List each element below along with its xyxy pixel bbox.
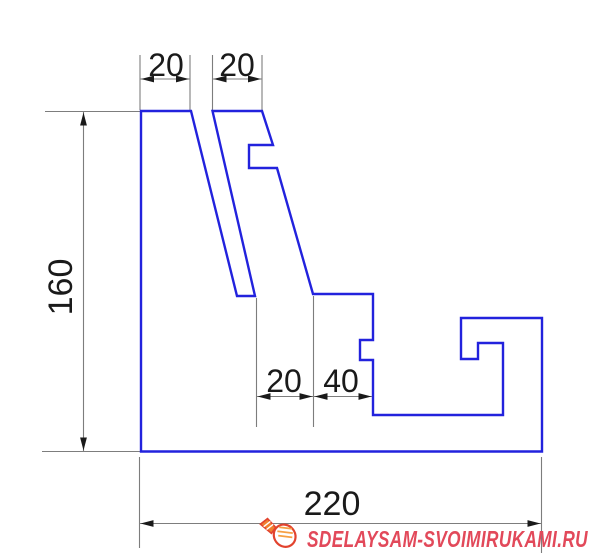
dimension-label: 160 — [42, 259, 80, 316]
dimension-label: 220 — [304, 485, 361, 523]
dimension-label: 20 — [148, 47, 184, 83]
technical-drawing-page: 20 20 160 20 40 220 — [0, 0, 600, 555]
dimension-label: 40 — [323, 363, 359, 399]
arrowhead — [80, 113, 87, 126]
dimension-top-right: 20 — [213, 47, 263, 110]
watermark-text: SDELAYSAM-SVOIMIRUKAMI.RU — [307, 526, 589, 552]
dimension-middle: 20 40 — [257, 296, 373, 427]
dimension-top-left: 20 — [140, 47, 190, 110]
technical-drawing: 20 20 160 20 40 220 — [0, 0, 600, 555]
lightbulb-icon — [260, 510, 300, 552]
dimension-left-height: 160 — [42, 112, 140, 452]
dimension-label: 20 — [266, 363, 302, 399]
arrowhead — [80, 438, 87, 451]
arrowhead — [141, 520, 154, 527]
profile-outline — [141, 111, 542, 452]
arrowhead — [359, 393, 372, 400]
dimension-label: 20 — [219, 47, 255, 83]
